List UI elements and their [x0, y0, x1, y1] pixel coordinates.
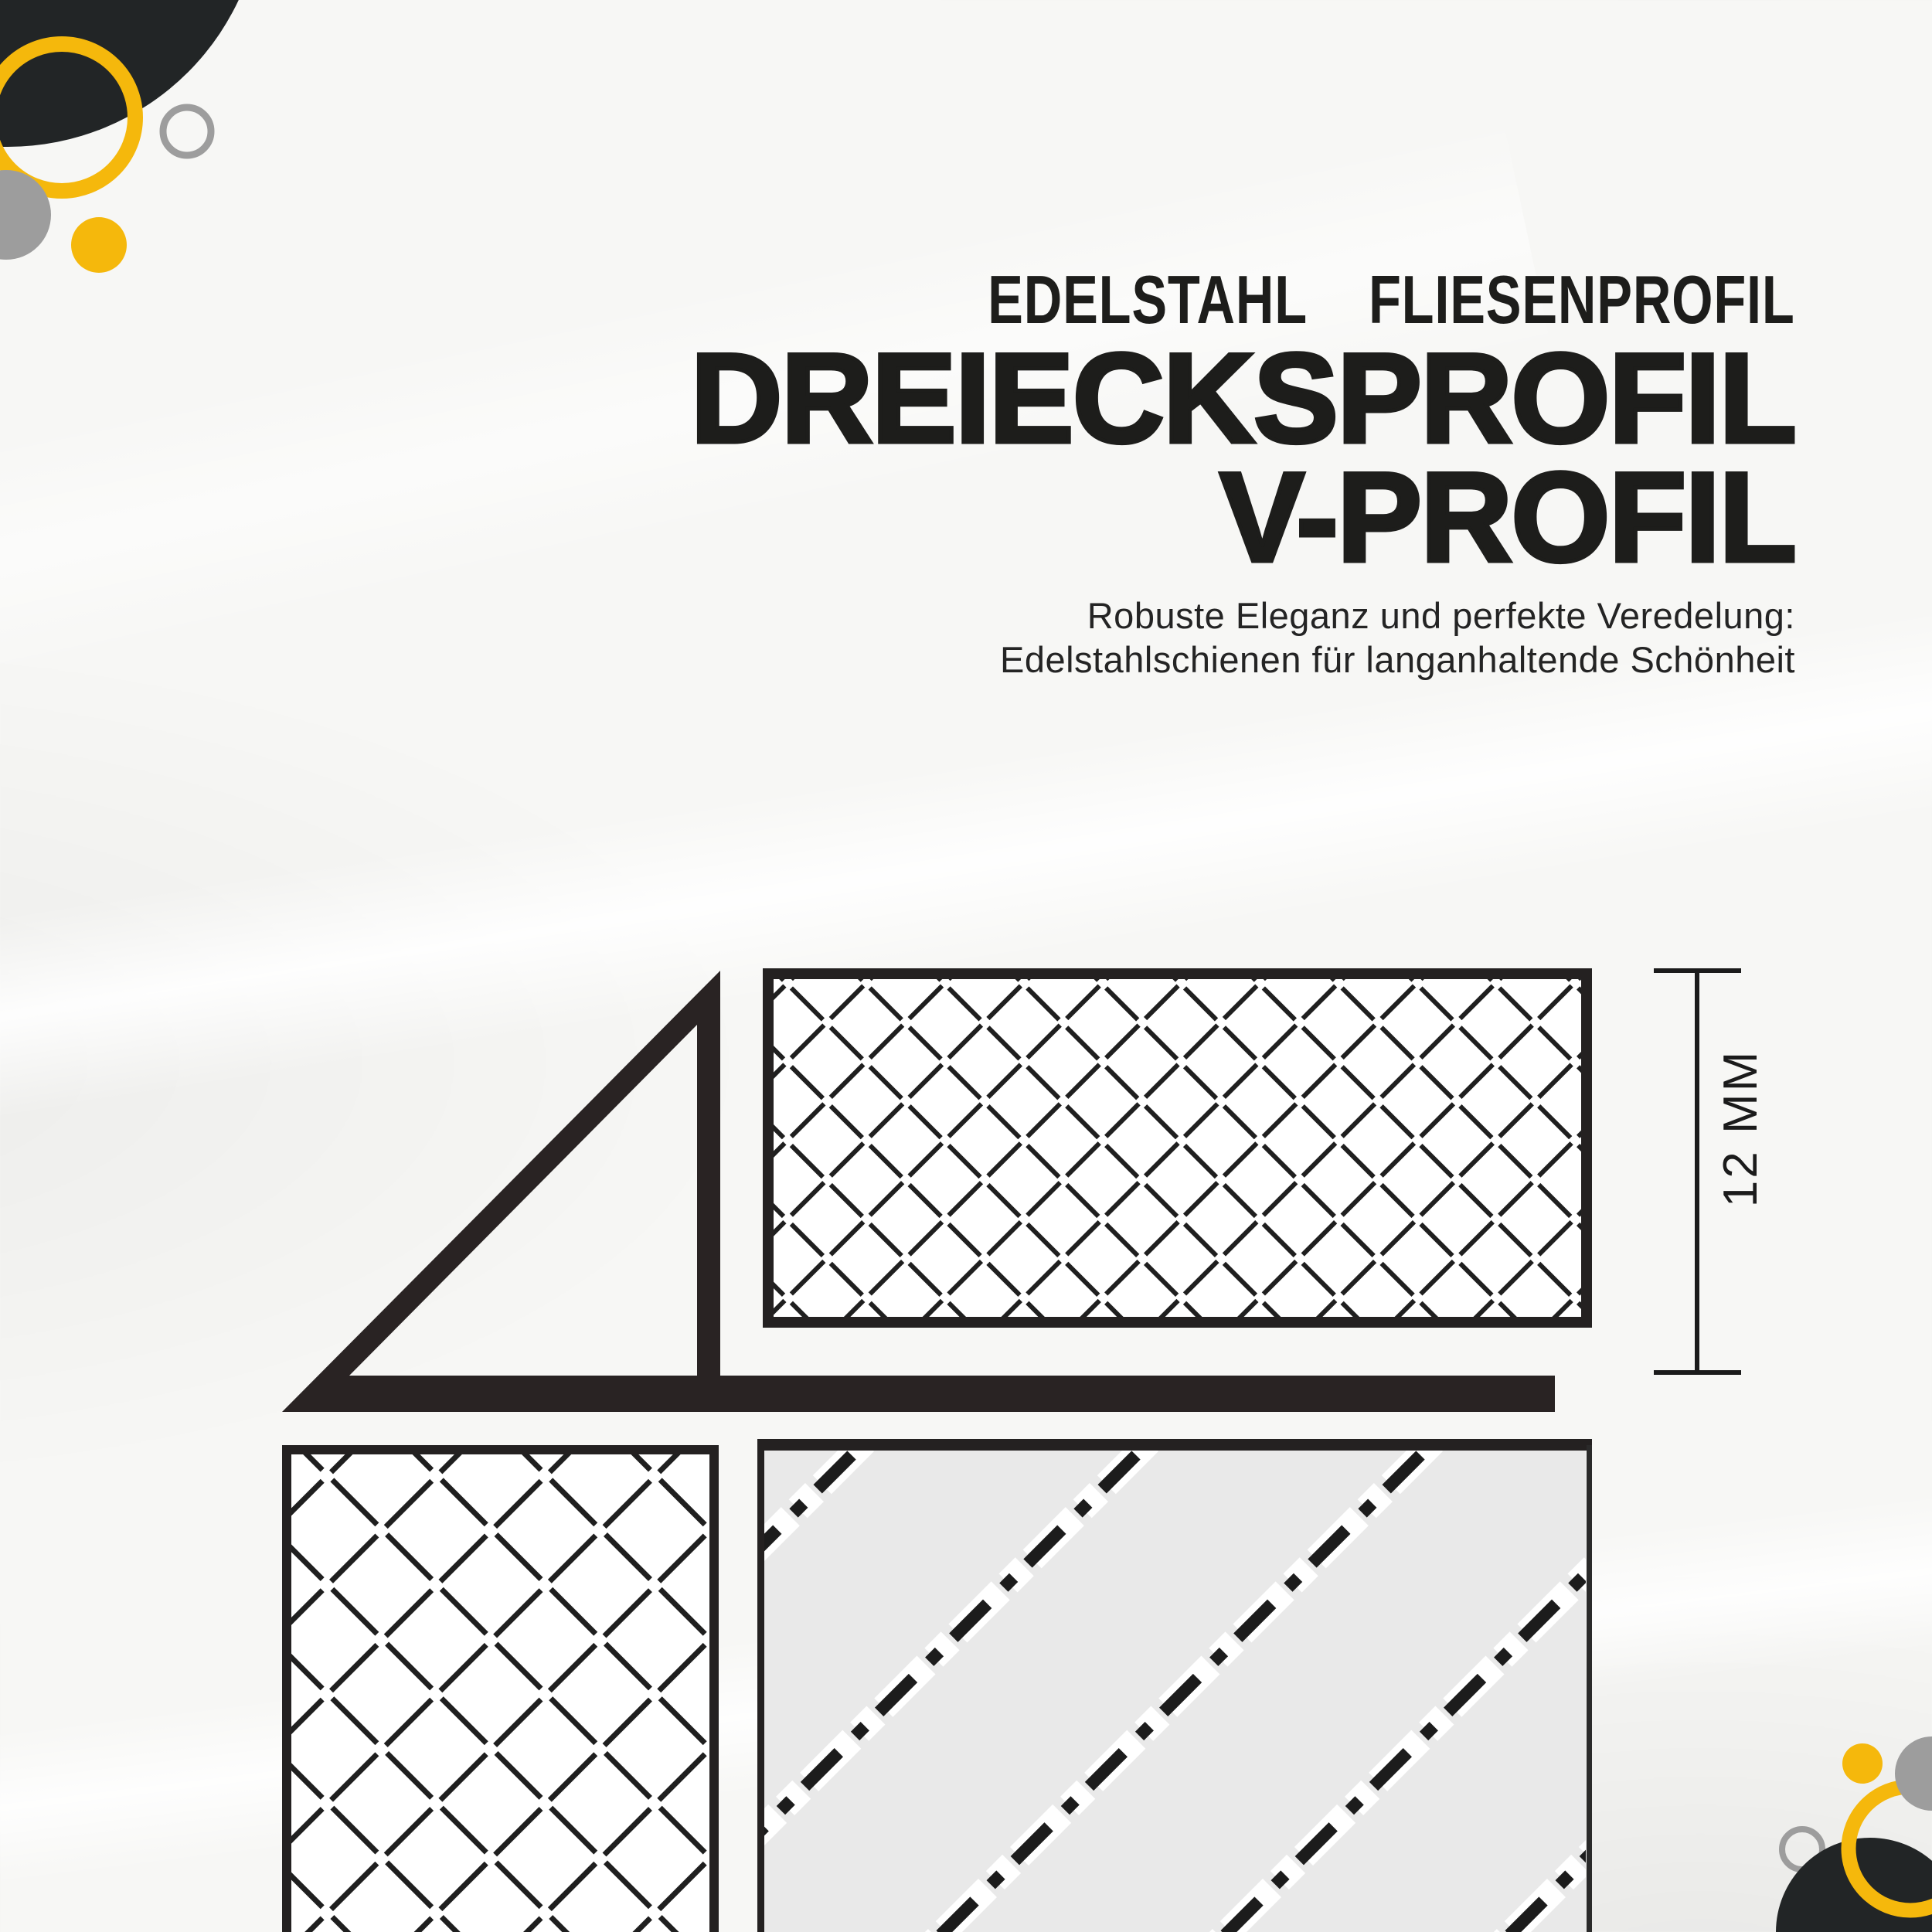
gray-circle-icon	[1895, 1736, 1932, 1811]
gray-ring-icon	[163, 107, 211, 155]
substrate-left-border	[757, 1439, 764, 1932]
substrate-top-border	[757, 1439, 1592, 1451]
yellow-dot-icon	[1842, 1743, 1883, 1784]
tile-top-section	[763, 968, 1592, 1328]
tile-top-hatch	[774, 979, 1581, 1317]
corner-decoration-bottom-right	[1776, 1736, 1932, 1932]
yellow-dot-icon	[71, 217, 127, 273]
subtitle-line2: Edelstahlschienen für langanhaltende Sch…	[690, 638, 1795, 682]
tile-left-hatch	[291, 1454, 709, 1932]
header-block: EDELSTAHL FLIESENPROFIL DREIECKSPROFIL V…	[690, 261, 1795, 682]
page-title-line2: V-PROFIL	[690, 457, 1795, 577]
substrate-right-border	[1587, 1445, 1592, 1932]
page-title-line1: DREIECKSPROFIL	[690, 338, 1795, 457]
kicker-text: EDELSTAHL FLIESENPROFIL	[934, 261, 1795, 338]
dimension-label: 12 MM	[1714, 1049, 1767, 1207]
profile-technical-drawing: 12 MM	[282, 968, 1932, 1932]
subtitle-line1: Robuste Eleganz und perfekte Veredelung:	[690, 594, 1795, 638]
corner-decoration-top-left	[0, 0, 263, 273]
tile-left-section	[282, 1445, 719, 1932]
poster-page: { "header": { "kicker": "EDELSTAHL FLIES…	[0, 0, 1932, 1932]
